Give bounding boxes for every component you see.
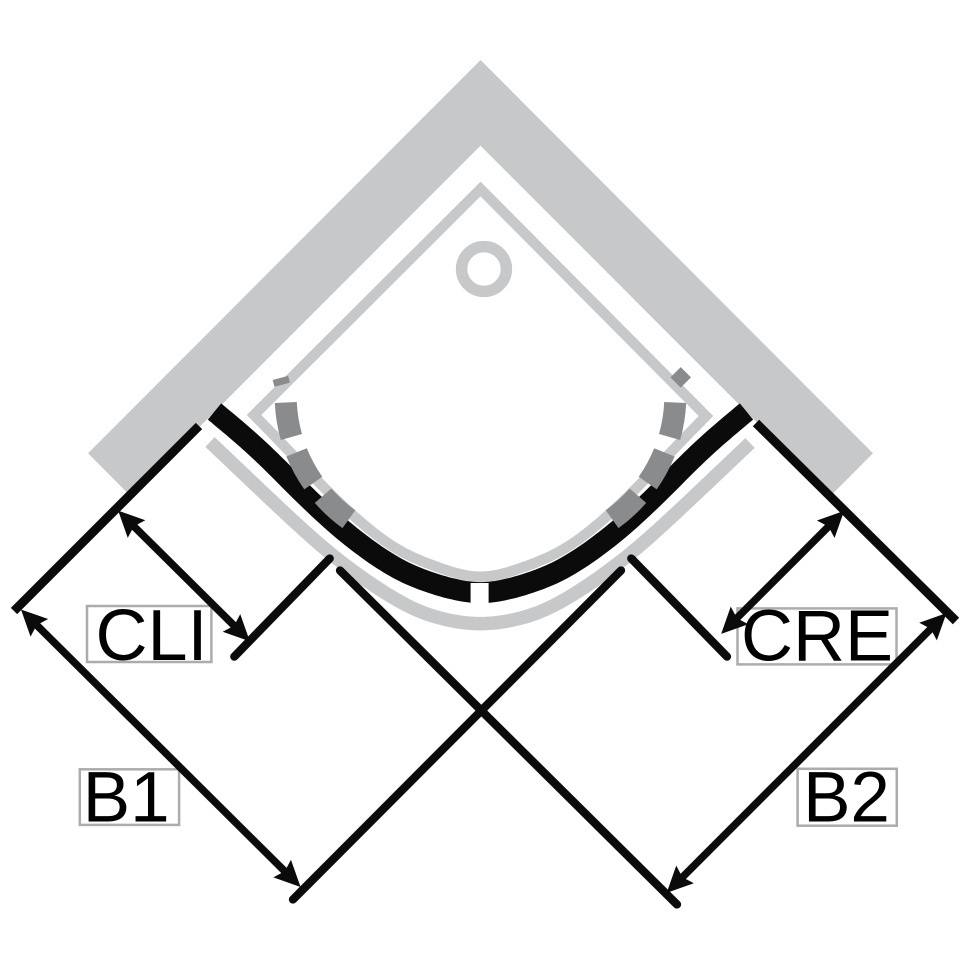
svg-text:B1: B1 [83, 759, 170, 838]
svg-text:CLI: CLI [95, 596, 207, 676]
svg-text:B2: B2 [803, 759, 890, 838]
svg-text:CRE: CRE [741, 597, 893, 677]
